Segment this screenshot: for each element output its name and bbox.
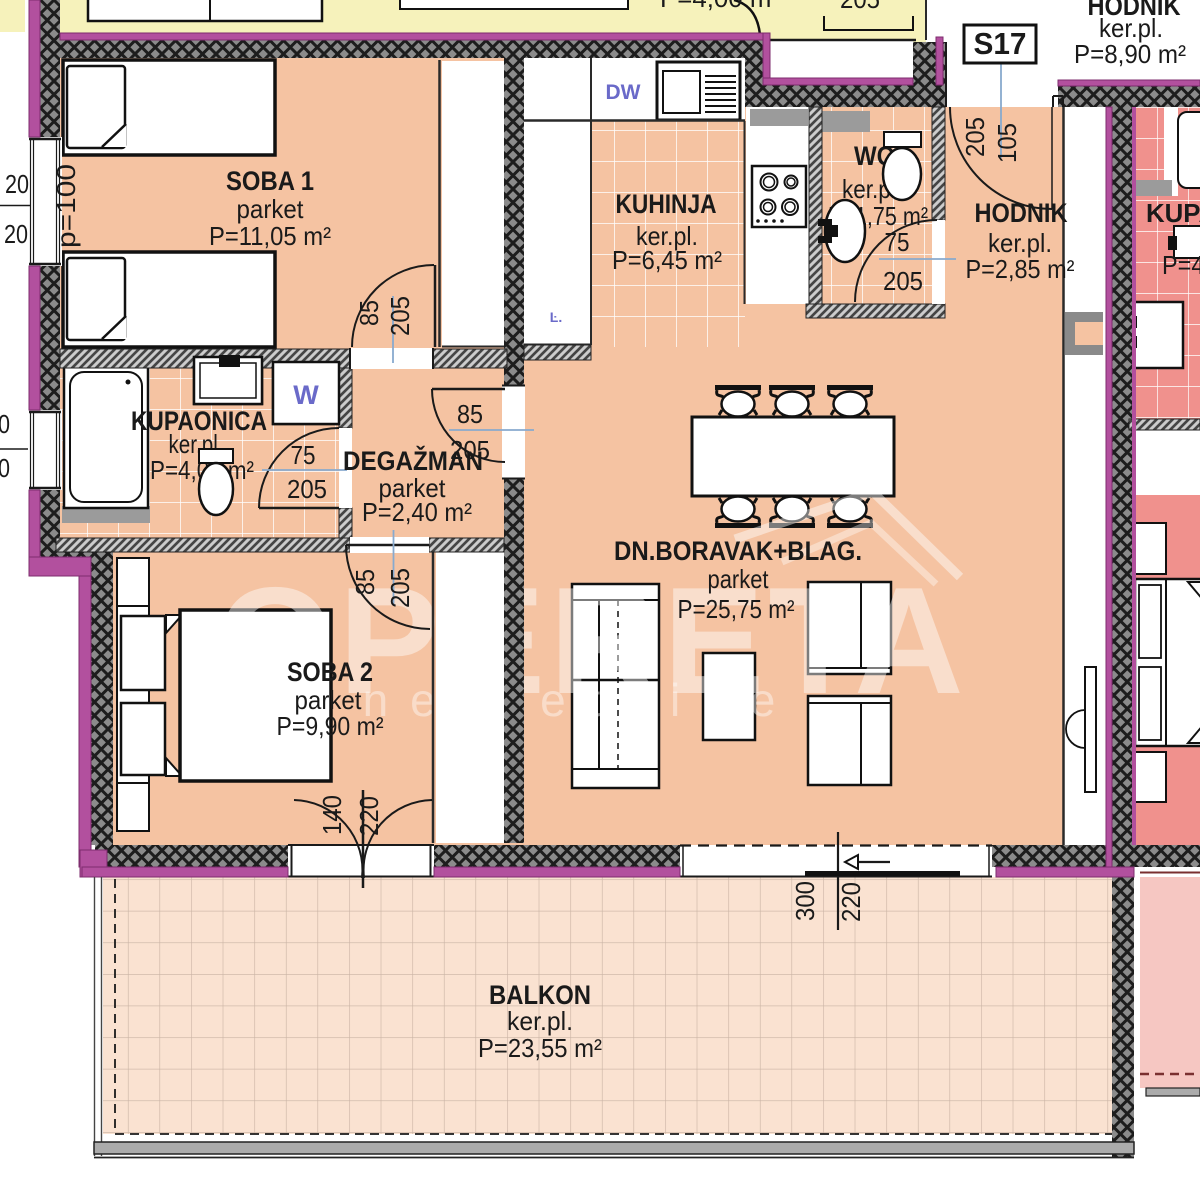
- svg-text:205: 205: [287, 474, 327, 504]
- svg-text:ker.pl.: ker.pl.: [507, 1006, 573, 1036]
- svg-text:KUPAON: KUPAON: [1146, 198, 1200, 228]
- svg-text:140: 140: [317, 795, 347, 835]
- svg-text:205: 205: [840, 0, 880, 14]
- svg-text:20: 20: [0, 453, 10, 483]
- svg-text:P=11,05 m²: P=11,05 m²: [209, 221, 331, 251]
- svg-text:205: 205: [385, 296, 415, 336]
- svg-text:300: 300: [790, 881, 820, 921]
- svg-text:20: 20: [0, 409, 10, 439]
- svg-text:20: 20: [4, 219, 28, 249]
- svg-text:DW: DW: [606, 81, 641, 104]
- svg-text:P=25,75 m²: P=25,75 m²: [678, 594, 795, 624]
- svg-text:Ŀ.: Ŀ.: [550, 309, 562, 325]
- svg-text:S17: S17: [974, 26, 1027, 61]
- svg-text:220: 220: [354, 796, 384, 836]
- svg-text:P=4,00 m²: P=4,00 m²: [660, 0, 780, 13]
- svg-text:75: 75: [291, 440, 316, 470]
- svg-text:HODNIK: HODNIK: [975, 198, 1068, 228]
- svg-text:85: 85: [457, 399, 483, 429]
- svg-text:205: 205: [883, 266, 923, 296]
- svg-text:parket: parket: [708, 564, 770, 594]
- svg-text:P=2,40 m²: P=2,40 m²: [362, 497, 472, 527]
- svg-text:P=2,85 m²: P=2,85 m²: [966, 254, 1075, 284]
- svg-text:85: 85: [354, 300, 384, 326]
- svg-text:P=4,6: P=4,6: [1162, 250, 1200, 280]
- svg-text:220: 220: [836, 882, 866, 922]
- svg-text:p=100: p=100: [51, 164, 81, 248]
- svg-text:nekretnine: nekretnine: [363, 674, 798, 726]
- svg-text:205: 205: [960, 117, 990, 157]
- svg-text:DEGAŽMAN: DEGAŽMAN: [343, 445, 483, 476]
- svg-text:205: 205: [385, 568, 415, 608]
- svg-text:DN.BORAVAK+BLAG.: DN.BORAVAK+BLAG.: [614, 536, 862, 566]
- svg-text:W: W: [293, 380, 319, 410]
- svg-text:P=8,90 m²: P=8,90 m²: [1074, 39, 1186, 69]
- svg-text:P=23,55 m²: P=23,55 m²: [478, 1033, 602, 1063]
- svg-text:85: 85: [350, 569, 380, 595]
- svg-text:20: 20: [5, 169, 29, 199]
- svg-text:SOBA 2: SOBA 2: [287, 657, 373, 687]
- svg-text:parket: parket: [237, 194, 305, 224]
- svg-text:P=6,45 m²: P=6,45 m²: [612, 245, 722, 275]
- svg-text:75: 75: [885, 227, 910, 257]
- svg-text:SOBA 1: SOBA 1: [226, 166, 314, 196]
- svg-text:105: 105: [992, 123, 1022, 163]
- svg-text:P=9,90 m²: P=9,90 m²: [277, 711, 384, 741]
- svg-text:KUHINJA: KUHINJA: [616, 189, 717, 219]
